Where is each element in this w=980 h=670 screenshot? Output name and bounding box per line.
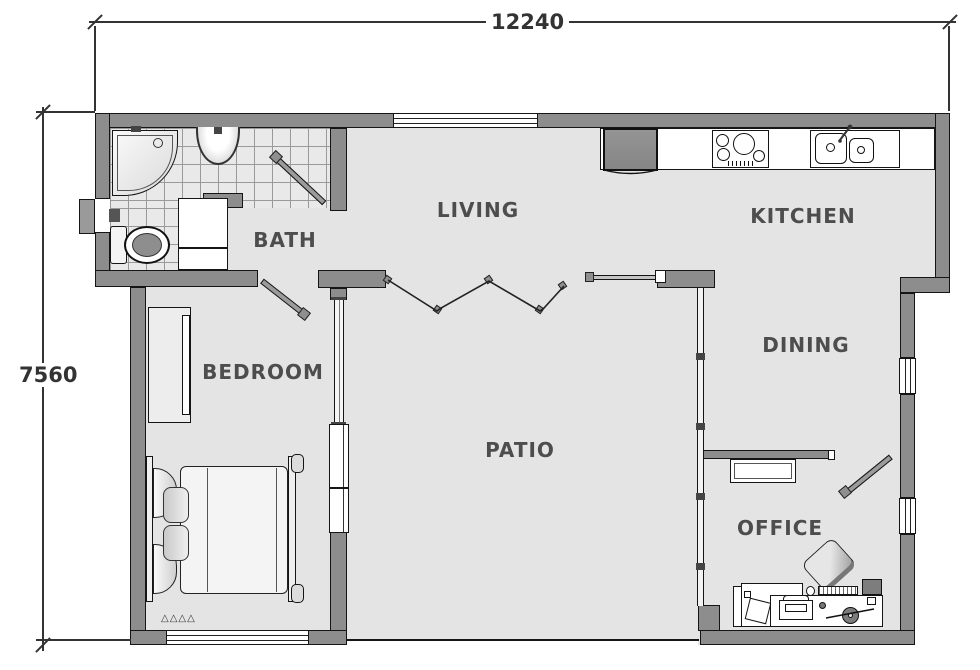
dining-window <box>899 358 916 394</box>
wall-patio-nw <box>318 270 386 288</box>
room-label-dining: DINING <box>762 333 849 357</box>
wall-bedroom-bottom-left <box>130 630 167 645</box>
living-window <box>393 113 538 128</box>
entry-door-icon <box>79 199 95 234</box>
floor-plan: △△△△ LIVING KITCHEN BATH BEDROOM DINING … <box>0 0 980 670</box>
wall-dining-right-b <box>900 394 915 498</box>
extension-line <box>948 26 950 111</box>
outside-left <box>95 287 130 670</box>
extension-line <box>36 111 95 113</box>
printer-tray <box>785 604 807 612</box>
extension-line <box>94 26 96 111</box>
glazed-wall-mullion <box>696 493 705 500</box>
bed-footboard <box>288 456 296 602</box>
dimension-height-value: 7560 <box>14 363 82 387</box>
sink-drain <box>826 143 835 152</box>
wall-office-sw-corner <box>698 605 720 631</box>
cooktop-controls <box>728 161 754 166</box>
sliding-door-pull <box>585 272 594 282</box>
toilet-bowl <box>132 233 162 257</box>
sliding-door-catch <box>655 270 666 283</box>
glazed-wall-mullion <box>696 353 705 360</box>
wall-bedroom-right-lower <box>330 532 347 631</box>
wall-right-step <box>900 277 950 293</box>
pc-tower-icon <box>862 579 882 595</box>
bed-mattress <box>180 466 288 594</box>
blanket-fold <box>207 468 208 592</box>
patio-glazed-wall <box>697 288 704 606</box>
room-label-bath: BATH <box>253 228 317 252</box>
bed-post <box>291 584 304 603</box>
double-bed-icon <box>146 456 153 602</box>
burner <box>716 134 729 147</box>
keyboard-icon <box>818 586 858 595</box>
bedroom-sliding-door-icon <box>334 299 344 424</box>
room-label-bedroom: BEDROOM <box>202 360 324 384</box>
desk-knob <box>819 602 826 609</box>
room-label-patio: PATIO <box>485 438 555 462</box>
bedroom-window <box>166 630 309 645</box>
shower-head <box>131 126 141 132</box>
office-door-jamb <box>828 450 835 460</box>
burner <box>733 133 755 155</box>
toilet-roll-holder <box>109 209 120 222</box>
sliding-door-icon <box>592 275 658 280</box>
room-label-living: LIVING <box>437 198 519 222</box>
shower-drain <box>153 138 163 148</box>
bed-pillow <box>163 487 189 523</box>
bath-faucet <box>214 127 222 134</box>
glazed-wall-mullion <box>696 563 705 570</box>
burner <box>753 150 765 162</box>
fridge-icon <box>603 128 658 171</box>
vanity-cabinet-icon <box>178 198 228 248</box>
burner <box>717 148 730 161</box>
sink-drain <box>857 146 865 154</box>
bed-post <box>291 454 304 473</box>
blanket-fold <box>276 468 277 592</box>
office-cabinet-inner <box>734 463 792 479</box>
room-label-kitchen: KITCHEN <box>750 204 855 228</box>
bed-pillow <box>163 525 189 561</box>
room-label-office: OFFICE <box>737 516 823 540</box>
tape-hole <box>848 613 853 618</box>
outside-bottom-patio <box>347 641 698 670</box>
patio-edge-line <box>346 639 699 641</box>
slider-end-tick <box>331 297 346 300</box>
bedroom-patio-winbox <box>329 424 349 488</box>
wall-bedroom-left <box>130 287 146 645</box>
wall-bedroom-bottom-right <box>308 630 347 645</box>
wall-kitchen-right <box>935 113 950 293</box>
wardrobe-door <box>182 315 190 415</box>
outside-right <box>915 293 980 670</box>
wall-bath-living <box>330 128 347 211</box>
entry-door-opening <box>95 198 110 233</box>
wall-office-bottom <box>700 630 915 645</box>
bedroom-patio-winbox <box>329 488 349 533</box>
glazed-wall-mullion <box>696 423 705 430</box>
dimension-width-value: 12240 <box>486 10 569 34</box>
wall-hall-bottom <box>95 270 258 287</box>
desk-note <box>867 597 876 605</box>
vanity-cabinet-icon <box>178 248 228 270</box>
office-window <box>899 498 916 534</box>
wall-dining-office <box>703 450 830 459</box>
wall-dining-right-c <box>900 534 915 645</box>
extension-line <box>36 639 131 641</box>
rug-marks: △△△△ <box>161 613 196 624</box>
wall-dining-right-a <box>900 293 915 358</box>
